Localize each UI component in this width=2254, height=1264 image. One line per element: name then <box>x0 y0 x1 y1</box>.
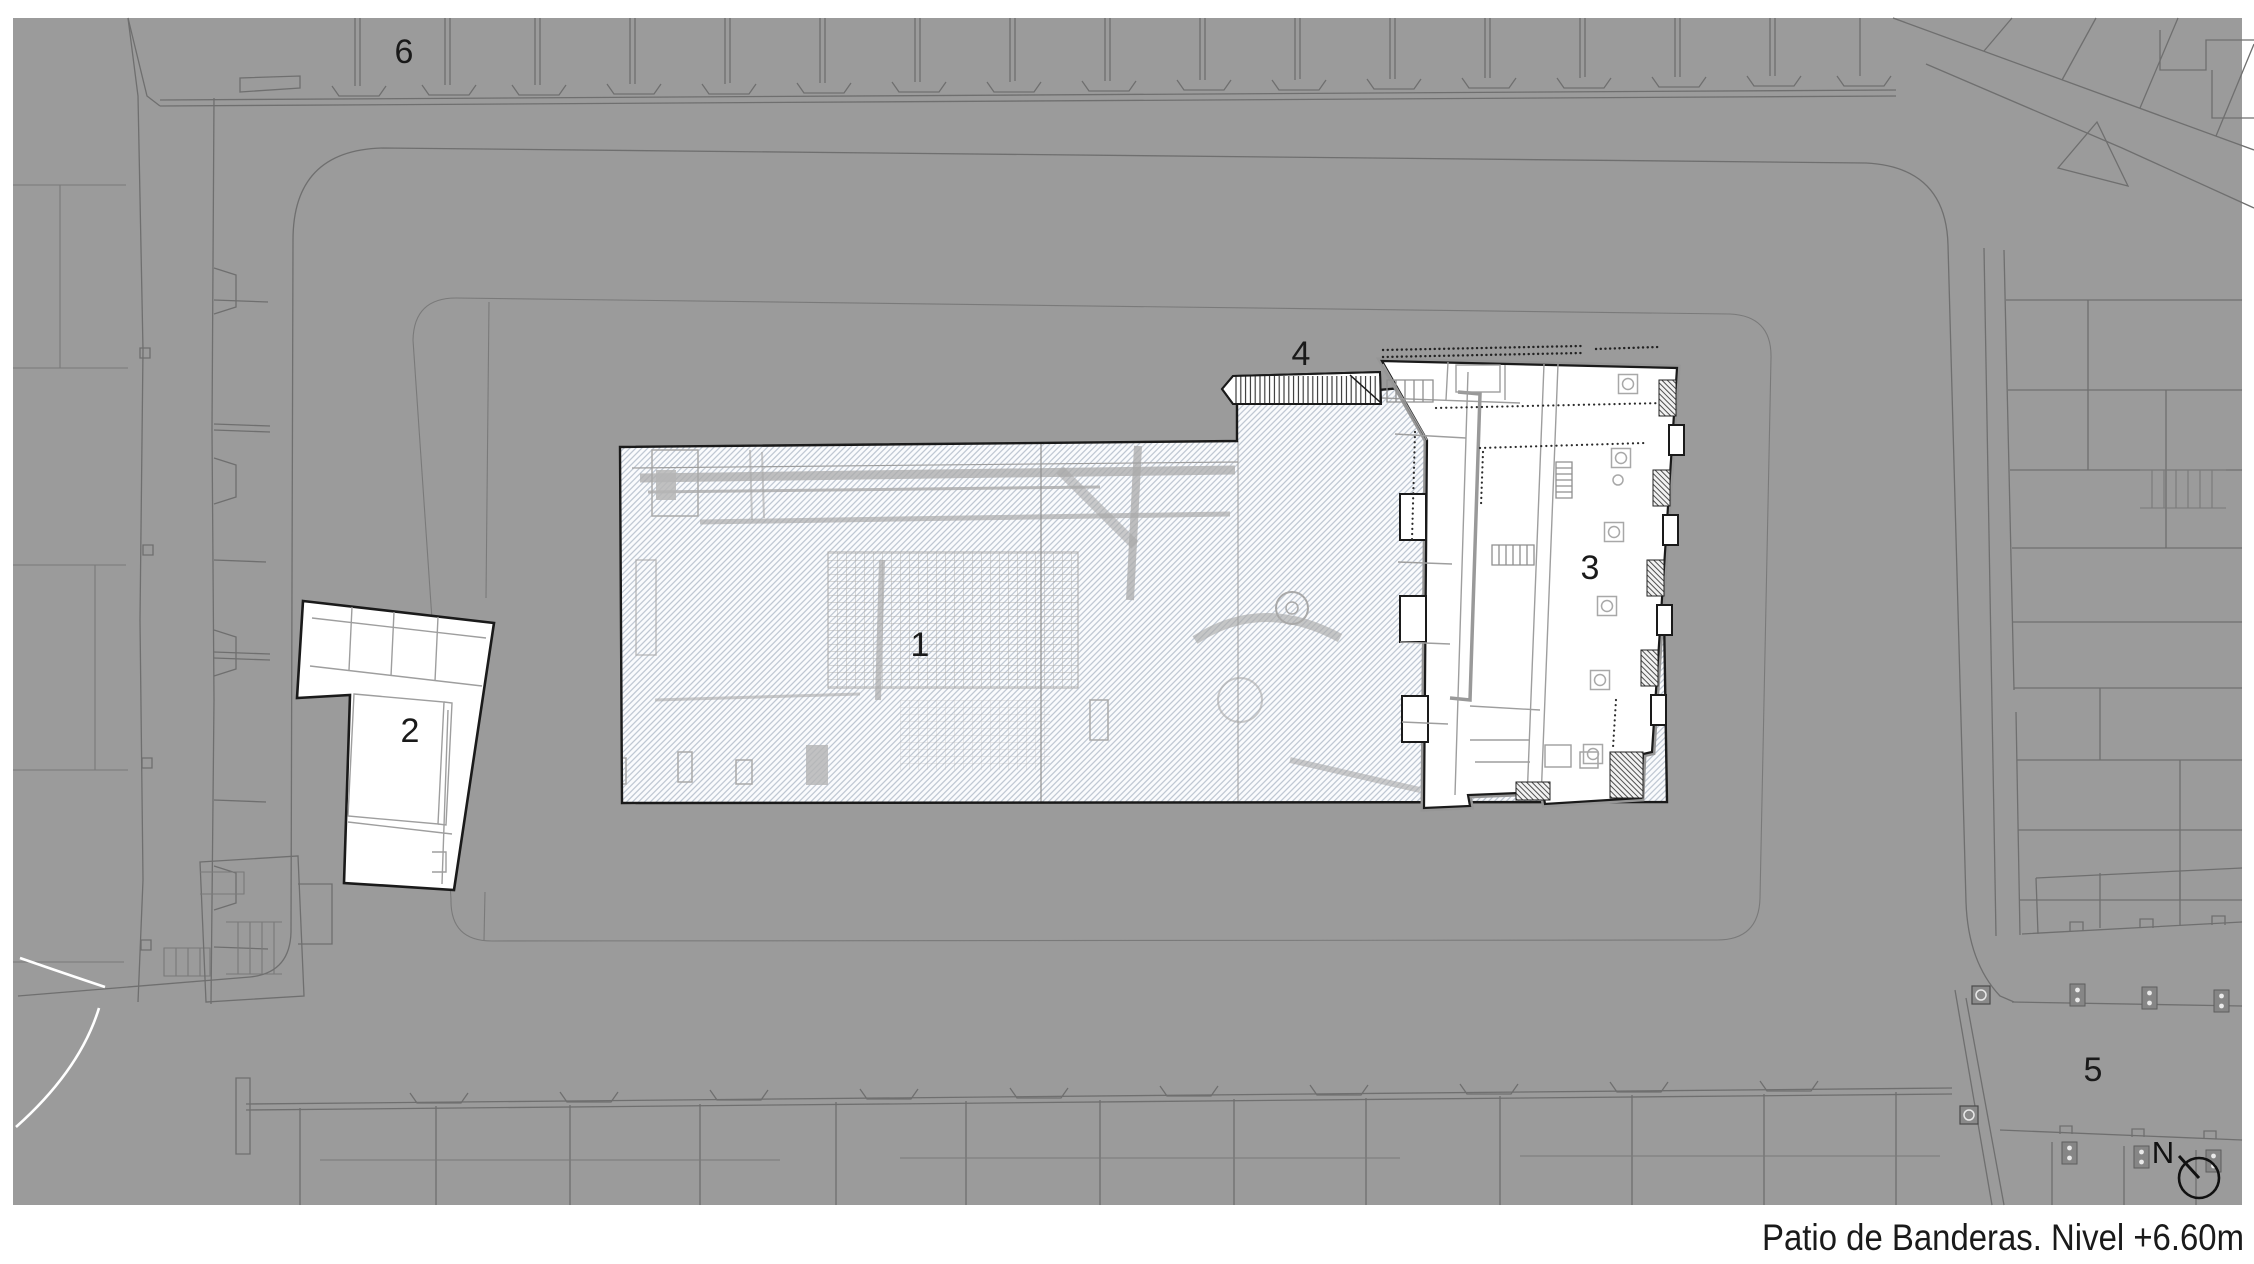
label-area-1: 1 <box>911 626 930 664</box>
label-area-3: 3 <box>1581 549 1600 587</box>
label-area-4: 4 <box>1292 335 1311 373</box>
label-area-6: 6 <box>395 33 414 71</box>
drawing-title: Patio de Banderas. Nivel +6.60m <box>1762 1217 2244 1258</box>
label-area-5: 5 <box>2084 1051 2103 1089</box>
stair-strip-area-4 <box>1222 372 1381 404</box>
site-plan-drawing: 1 2 3 4 5 6 N Patio de Banderas. Nivel +… <box>0 0 2254 1264</box>
building3-left-rooms <box>1400 494 1428 742</box>
north-letter: N <box>2152 1135 2174 1170</box>
label-area-2: 2 <box>401 712 420 750</box>
stair-treads <box>1233 376 1380 403</box>
building-area-3 <box>1382 346 1684 808</box>
